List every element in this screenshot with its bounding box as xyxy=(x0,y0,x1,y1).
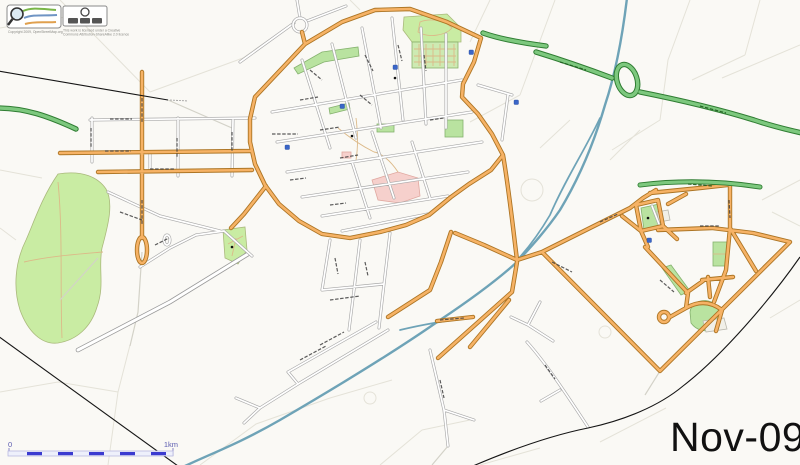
poi-dot xyxy=(231,246,234,249)
map-background xyxy=(0,0,800,465)
parking-icon xyxy=(285,145,290,150)
poi-dot xyxy=(647,217,650,220)
cc-by-icon xyxy=(68,18,78,24)
parking-icon xyxy=(469,50,474,55)
magnifier-icon xyxy=(11,8,23,20)
park-small-3 xyxy=(445,120,463,137)
date-label: Nov-09 xyxy=(670,414,800,460)
cc-caption-line2: Commons Attribution-ShareAlike 2.0 licen… xyxy=(63,33,129,37)
cc-license-icon xyxy=(92,18,102,24)
parking-icon xyxy=(514,100,519,105)
parking-icon xyxy=(340,104,345,109)
scale-end-label: 1km xyxy=(164,440,178,449)
poi-dot xyxy=(394,77,397,80)
parking-icon xyxy=(393,65,398,70)
map-canvas: Copyright 2009, OpenStreetMap.org This w… xyxy=(0,0,800,465)
cc-sa-icon xyxy=(80,18,90,24)
poi-dot xyxy=(351,135,354,138)
osm-logo xyxy=(7,5,61,28)
parking-icon xyxy=(647,238,652,243)
scale-start-label: 0 xyxy=(8,440,12,449)
osm-copyright-caption: Copyright 2009, OpenStreetMap.org xyxy=(8,30,63,34)
cc-license-badge xyxy=(63,6,107,26)
map-export-image: Copyright 2009, OpenStreetMap.org This w… xyxy=(0,0,800,465)
